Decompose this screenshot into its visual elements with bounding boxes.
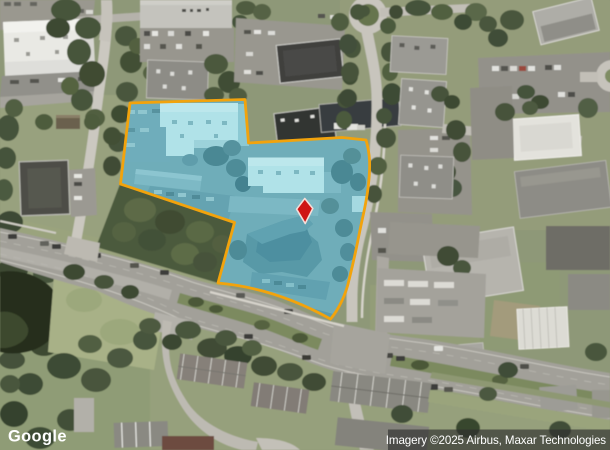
svg-text:Google: Google <box>8 428 67 446</box>
svg-text:Imagery ©2025 Airbus, Maxar Te: Imagery ©2025 Airbus, Maxar Technologies <box>386 434 607 447</box>
